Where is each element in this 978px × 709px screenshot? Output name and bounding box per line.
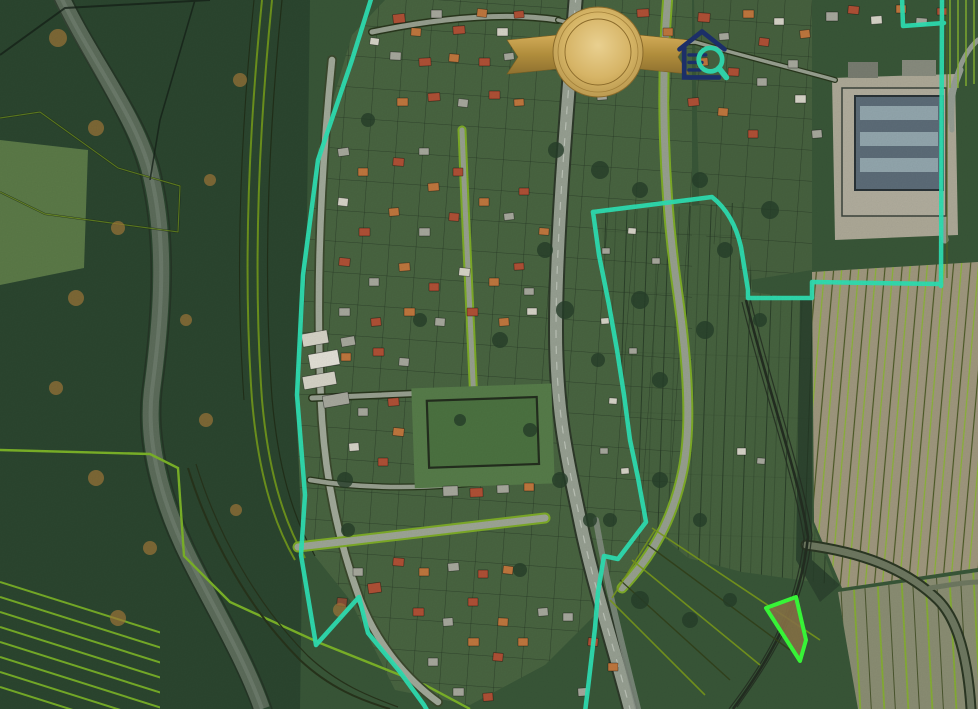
brand-text xyxy=(736,37,737,72)
satellite-map[interactable] xyxy=(0,0,978,709)
house-magnifier-icon xyxy=(672,24,732,84)
brand-logo[interactable] xyxy=(672,24,737,84)
map-viewport[interactable] xyxy=(0,0,978,709)
verified-member-badge xyxy=(505,6,691,102)
noise-overlay xyxy=(0,0,978,709)
badge-ribbon-left xyxy=(507,35,557,74)
